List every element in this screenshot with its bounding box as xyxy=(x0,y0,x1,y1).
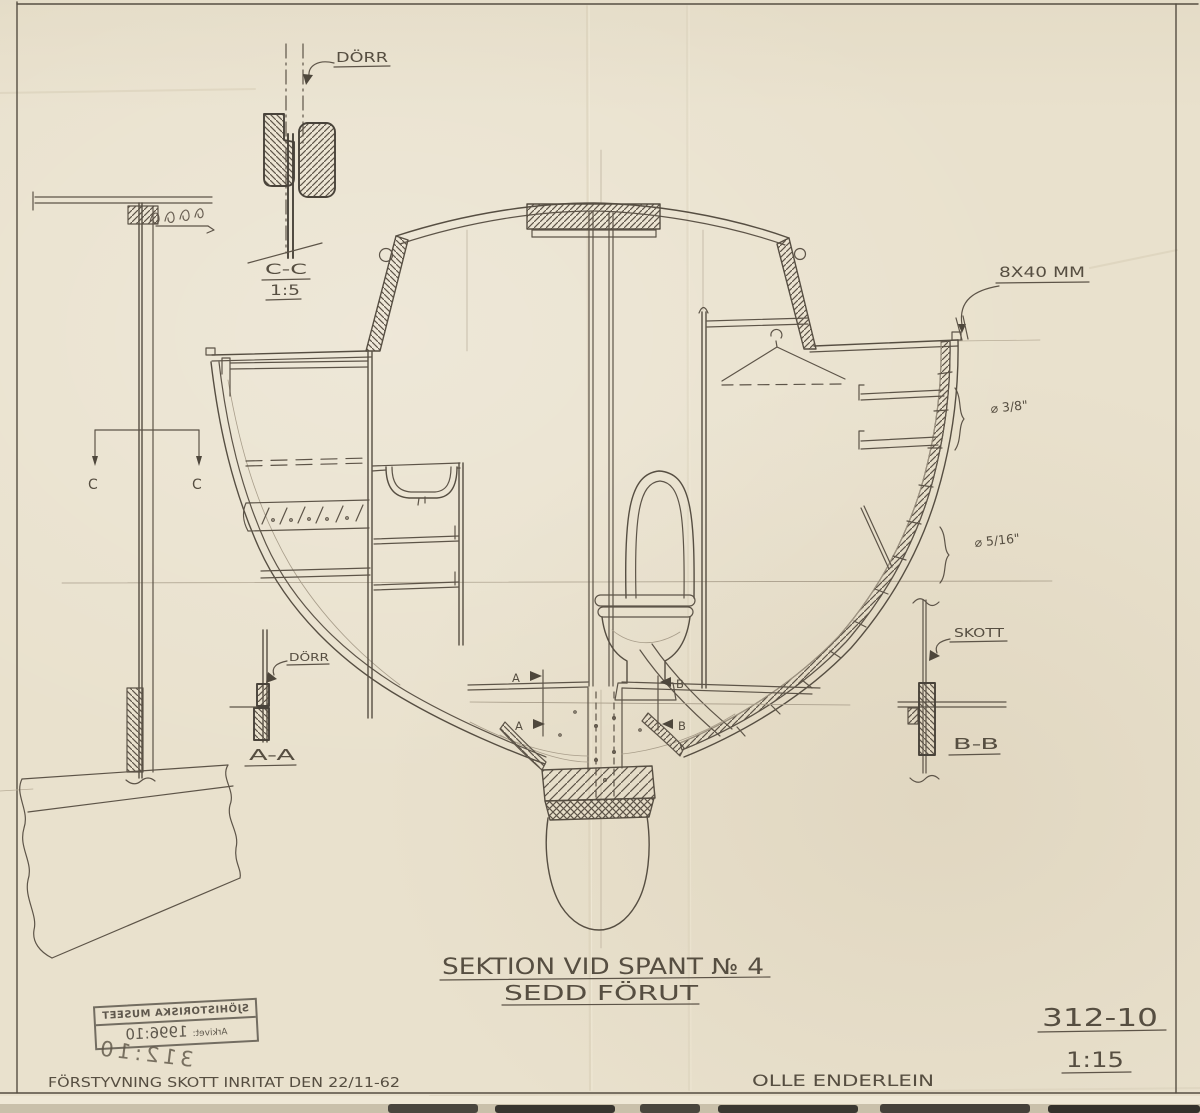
scan-edge-light xyxy=(0,1096,1200,1104)
aa-label: A-A xyxy=(249,746,296,764)
shelf-tick-marks xyxy=(262,505,363,524)
marker-b-upper: B xyxy=(676,677,684,691)
marker-a-upper: A xyxy=(512,671,520,685)
bb-label: B-B xyxy=(953,735,999,753)
marker-a-lower: A xyxy=(515,719,523,733)
c-arrow-left-label: C xyxy=(88,477,98,493)
revision-note: FÖRSTYVNING SKOTT INRITAT DEN 22/11-62 xyxy=(48,1074,400,1091)
hull-shelves-right xyxy=(859,385,944,449)
bolt-ticks xyxy=(737,372,952,736)
dia-upper-label: ⌀ 3/8" xyxy=(990,397,1029,416)
keel xyxy=(500,713,684,930)
scan-edge-dark xyxy=(0,1104,1200,1113)
bolt-spec-label: 8X40 MM xyxy=(999,265,1085,281)
title-block: SEKTION VID SPANT № 4 SEDD FÖRUT 312-10 … xyxy=(440,955,1166,1073)
mast-bulkhead-detail: C C xyxy=(33,192,214,784)
cc-label: C-C xyxy=(265,262,307,278)
c-arrow-right-label: C xyxy=(192,477,202,493)
hanging-locker xyxy=(699,308,944,689)
plank-sketch xyxy=(20,765,241,958)
toilet xyxy=(595,471,732,736)
skott-label: SKOTT xyxy=(954,626,1005,640)
dia-lower-label: ⌀ 5/16" xyxy=(974,530,1021,550)
coat-hanger xyxy=(722,329,845,385)
drawing-subtitle: SEDD FÖRUT xyxy=(504,981,699,1005)
drawing-title: SEKTION VID SPANT № 4 xyxy=(442,955,764,980)
detail-c-c: DÖRR C-C 1:5 xyxy=(248,44,390,300)
stamp-archive-label: Arkivet: xyxy=(192,1027,227,1039)
cc-scale: 1:5 xyxy=(270,283,300,299)
washbasin-counter xyxy=(372,463,463,645)
paper-creases xyxy=(0,6,1200,1096)
datum-lines xyxy=(0,150,1052,948)
drawing-number: 312-10 xyxy=(1042,1003,1158,1032)
drawing-sheet: C C DÖRR C-C 1:5 DÖRR xyxy=(0,0,1200,1113)
section-drawing-svg: C C DÖRR C-C 1:5 DÖRR xyxy=(0,0,1200,1113)
dorr-top-label: DÖRR xyxy=(336,49,388,66)
marker-b-lower: B xyxy=(678,719,686,733)
drawing-scale: 1:15 xyxy=(1066,1048,1124,1072)
detail-b-b: SKOTT B-B xyxy=(898,599,1007,783)
footer: FÖRSTYVNING SKOTT INRITAT DEN 22/11-62 O… xyxy=(48,1071,934,1091)
designer-name: OLLE ENDERLEIN xyxy=(752,1071,934,1090)
dorr-bottom-label: DÖRR xyxy=(289,651,329,664)
detail-a-a: DÖRR A-A xyxy=(230,630,329,766)
fastening-annotations: 8X40 MM ⌀ 3/8" ⌀ 5/16" xyxy=(940,265,1089,583)
